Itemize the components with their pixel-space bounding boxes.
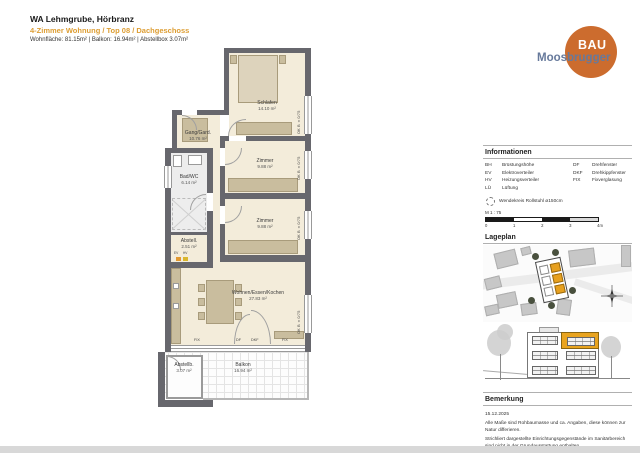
room-label-abstell: Abstell. 2.51 m² xyxy=(159,238,219,250)
wall-right-d xyxy=(305,239,311,295)
scale-segment xyxy=(570,218,598,221)
room-label-balkon: Balkon 16.94 m² xyxy=(213,362,273,374)
wall-right-e xyxy=(305,333,311,352)
room-name: Zimmer xyxy=(257,158,274,164)
terrain-line xyxy=(483,370,527,375)
wall-bad-top xyxy=(165,148,213,153)
legend-label: Fixverglasung xyxy=(592,178,622,183)
window-annotation: OK B ±0/75 xyxy=(297,98,301,134)
wall-bad-right-a xyxy=(207,148,213,193)
ev-marker xyxy=(176,257,181,261)
zimmer1-furniture xyxy=(228,178,298,192)
room-label-schlafen: Schlafen 14.10 m² xyxy=(237,100,297,112)
scale-ticks: 0 1 2 3 4m xyxy=(483,223,603,228)
window-type-label: DKF xyxy=(251,338,259,342)
tree-icon xyxy=(548,302,555,309)
wall-corridor-b xyxy=(220,166,225,206)
legend-row: DFDrehfenster xyxy=(573,162,626,170)
room-label-abstellbox: Abstellb. 3.07 m² xyxy=(160,362,208,374)
room-area: 16.94 m² xyxy=(213,368,273,374)
wall-zimmer2-bottom xyxy=(225,255,311,262)
highlighted-unit-elevation xyxy=(561,332,599,349)
window-type-label: DF xyxy=(236,338,241,342)
wheelchair-circle-icon xyxy=(486,197,495,206)
window-type-label: FIX xyxy=(282,338,288,342)
area-summary: Wohnfläche: 81.15m² | Balkon: 16.94m² | … xyxy=(30,37,189,45)
scale-segment xyxy=(486,218,514,221)
room-name: Abstellb. xyxy=(174,362,193,368)
balcony-railing-right xyxy=(307,352,309,400)
neighbor-building xyxy=(520,302,538,316)
plan-sheet: WA Lehmgrube, Hörbranz 4-Zimmer Wohnung … xyxy=(0,0,640,453)
dining-table xyxy=(206,280,234,324)
room-label-zimmer1: Zimmer 9.88 m² xyxy=(235,158,295,170)
ground-line xyxy=(485,378,630,379)
legend-abbr: EV xyxy=(485,170,502,178)
remark-note-1: Alle Maße sind Rohbaumasse und ca. Angab… xyxy=(485,421,627,434)
legend-label: Heizungsverteiler xyxy=(502,178,539,183)
hv-marker-label: HV xyxy=(183,251,187,255)
balcony-wall-bottom xyxy=(158,400,213,407)
chair xyxy=(198,312,205,320)
legend-abbr: LÜ xyxy=(485,185,502,193)
scale-tick: 2 xyxy=(541,223,543,228)
bed xyxy=(238,55,278,103)
room-area: 2.51 m² xyxy=(159,244,219,250)
hv-marker xyxy=(183,257,188,261)
informationen-title: Informationen xyxy=(483,146,632,158)
neighbor-building xyxy=(496,291,518,309)
room-area: 10.76 m² xyxy=(168,136,228,142)
legend-label: Lüftung xyxy=(502,186,518,191)
elevation-window-row xyxy=(532,351,558,360)
logo-text-bau: BAU xyxy=(578,38,607,52)
room-name: Gang/Gard. xyxy=(185,130,211,136)
legend-row: DKFDrehkippfenster xyxy=(573,170,626,178)
scale-tick: 3 xyxy=(569,223,571,228)
terrace-glazing xyxy=(171,345,305,352)
neighbor-building xyxy=(568,247,596,267)
wall-zimmer-divider xyxy=(225,193,311,199)
legend-abbr: BH xyxy=(485,162,502,170)
scale-segment xyxy=(514,218,542,221)
room-name: Wohnen/Essen/Kochen xyxy=(232,290,284,296)
divider xyxy=(483,243,632,244)
wall-bad-abstell-divider xyxy=(171,232,207,235)
window-annotation: OK B ±0/75 xyxy=(297,296,301,334)
scale-tick: 4m xyxy=(597,223,603,228)
elevation-window-row xyxy=(532,366,558,375)
room-area: 6.14 m² xyxy=(159,180,219,186)
window-type-label: FIX xyxy=(194,338,200,342)
legend-label: Elektroverteiler xyxy=(502,171,534,176)
elevation-window-row xyxy=(566,366,596,375)
wheelchair-legend: Wendekreis Rollstuhl ø150cm xyxy=(485,197,632,206)
room-area: 14.10 m² xyxy=(237,106,297,112)
legend-abbr: FIX xyxy=(573,177,592,185)
tree-icon xyxy=(528,297,535,304)
room-label-wohnen: Wohnen/Essen/Kochen 27.83 m² xyxy=(218,290,298,302)
highlighted-unit xyxy=(552,273,564,284)
window-annotation: OK B ±0/75 xyxy=(297,152,301,180)
wall-bad-left-b xyxy=(165,188,171,268)
building-elevation xyxy=(483,322,632,392)
room-area: 9.88 m² xyxy=(235,224,295,230)
legend-label: Brüstungshöhe xyxy=(502,163,534,168)
scale-label: M 1 : 75 xyxy=(485,210,632,215)
tree-sketch xyxy=(497,324,513,340)
neighbor-building xyxy=(493,249,518,270)
project-building-outline xyxy=(535,257,569,303)
neighbor-building xyxy=(621,245,631,267)
elevation-window-row xyxy=(567,337,595,346)
elevation-window-row xyxy=(566,351,596,360)
room-label-gang: Gang/Gard. 10.76 m² xyxy=(168,130,228,142)
room-area: 9.88 m² xyxy=(235,164,295,170)
tree-icon xyxy=(532,253,539,260)
tree-sketch xyxy=(601,336,621,358)
site-plan xyxy=(483,245,632,322)
room-name: Schlafen xyxy=(257,100,276,106)
lageplan-title: Lageplan xyxy=(483,231,632,243)
legend-label: Drehkippfenster xyxy=(592,171,626,176)
scale-segment xyxy=(542,218,570,221)
washbasin xyxy=(188,155,202,165)
wall-right-b xyxy=(305,134,311,151)
legend-abbr: DKF xyxy=(573,170,592,178)
legend-abbr: HV xyxy=(485,177,502,185)
highlighted-unit xyxy=(550,262,562,273)
neighbor-building xyxy=(484,304,500,317)
zimmer1-window xyxy=(304,151,312,179)
room-name: Bad/WC xyxy=(180,174,199,180)
toilet xyxy=(173,155,182,167)
legend-label: Drehfenster xyxy=(592,163,617,168)
wohnen-side-window xyxy=(304,295,312,333)
scale-tick: 1 xyxy=(513,223,515,228)
legend-abbr: DF xyxy=(573,162,592,170)
kitchen-sink xyxy=(173,283,179,289)
wall-gang-top-b xyxy=(197,110,229,115)
unit-cell xyxy=(539,265,550,276)
project-title: WA Lehmgrube, Hörbranz xyxy=(30,14,189,25)
unit-subtitle: 4-Zimmer Wohnung / Top 08 / Dachgeschoss xyxy=(30,26,189,35)
elevation-window-row xyxy=(532,336,558,345)
scale-tick: 0 xyxy=(485,223,487,228)
wall-schlafen-bottom-b xyxy=(246,136,305,141)
zimmer2-furniture xyxy=(228,240,298,254)
bemerkung-title: Bemerkung xyxy=(483,393,632,405)
nightstand-right xyxy=(279,55,286,64)
compass-icon xyxy=(601,285,623,307)
unit-cell xyxy=(541,275,552,286)
room-area: 27.83 m² xyxy=(218,296,298,302)
chair xyxy=(198,284,205,292)
wall-top xyxy=(224,48,311,53)
unit-cell xyxy=(543,286,554,297)
room-label-bad: Bad/WC 6.14 m² xyxy=(159,174,219,186)
floor-plan: EV HV Schlafen 14.10 m² Gang/Gard. 10.76… xyxy=(158,48,346,420)
balcony-railing-bottom xyxy=(203,398,309,400)
scale-bar xyxy=(485,217,599,222)
tree-trunk xyxy=(611,356,612,379)
legend-row: FIXFixverglasung xyxy=(573,177,626,185)
balcony-wall-left xyxy=(158,352,165,407)
kitchen-hob xyxy=(173,303,179,309)
date-note: 15.12.2025 xyxy=(485,412,627,418)
neighbor-building xyxy=(520,246,532,256)
zimmer2-window xyxy=(304,211,312,239)
divider xyxy=(483,405,632,406)
room-name: Zimmer xyxy=(257,218,274,224)
chair xyxy=(198,298,205,306)
window-annotation: OK B ±0/75 xyxy=(297,212,301,240)
ev-marker-label: EV xyxy=(174,251,178,255)
schlafen-window xyxy=(304,96,312,134)
wheelchair-label: Wendekreis Rollstuhl ø150cm xyxy=(499,199,563,204)
wall-schlafen-left xyxy=(224,48,229,112)
tree-icon xyxy=(552,249,559,256)
tree-trunk xyxy=(500,354,501,380)
neighbor-building xyxy=(556,298,572,316)
nightstand-left xyxy=(230,55,237,64)
logo-text-moosbrugger: Moosbrugger xyxy=(537,52,610,64)
info-panel: Informationen BHBrüstungshöhe EVElektrov… xyxy=(483,145,632,450)
page-edge xyxy=(0,446,640,453)
neighbor-building xyxy=(484,275,502,291)
tree-icon xyxy=(569,287,576,294)
legend-row: LÜLüftung xyxy=(485,185,632,193)
room-name: Balkon xyxy=(235,362,250,368)
wall-right-a xyxy=(305,48,311,96)
room-name: Abstell. xyxy=(181,238,197,244)
legend-right-column: DFDrehfenster DKFDrehkippfenster FIXFixv… xyxy=(573,162,626,185)
highlighted-unit xyxy=(554,284,566,295)
room-label-zimmer2: Zimmer 9.88 m² xyxy=(235,218,295,230)
legend: BHBrüstungshöhe EVElektroverteiler HVHei… xyxy=(485,162,632,194)
sheet-header: WA Lehmgrube, Hörbranz 4-Zimmer Wohnung … xyxy=(30,14,189,45)
divider xyxy=(483,158,632,159)
room-area: 3.07 m² xyxy=(160,368,208,374)
